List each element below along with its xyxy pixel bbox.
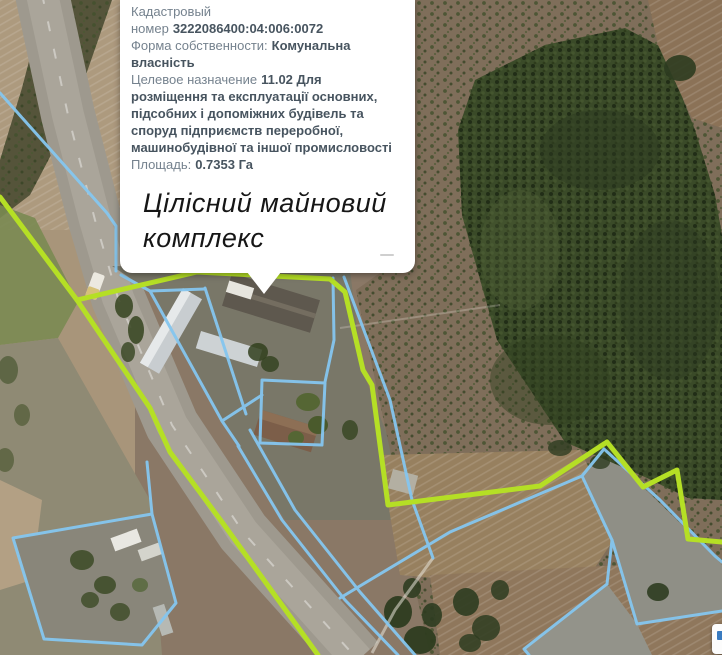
cadastral-info-popup: Кадастровый номер3222086400:04:006:0072 … bbox=[120, 0, 415, 273]
map-control-icon bbox=[717, 631, 722, 640]
purpose-field: Целевое назначение11.02 Для розміщення т… bbox=[131, 71, 399, 156]
annotation-text: Цілісний майновий комплекс bbox=[143, 186, 393, 256]
purpose-label: Целевое назначение bbox=[131, 72, 257, 87]
ownership-field: Форма собственности:Комунальна власність bbox=[131, 37, 399, 71]
area-field: Площадь:0.7353 Га bbox=[131, 156, 399, 173]
area-value: 0.7353 Га bbox=[195, 157, 253, 172]
map-control-partial[interactable] bbox=[712, 624, 722, 654]
popup-drag-dash bbox=[380, 254, 394, 256]
cadastral-number-value: 3222086400:04:006:0072 bbox=[173, 21, 323, 36]
popup-pointer bbox=[247, 272, 281, 294]
cadastral-number-field: Кадастровый номер3222086400:04:006:0072 bbox=[131, 3, 399, 37]
ownership-label: Форма собственности: bbox=[131, 38, 268, 53]
area-label: Площадь: bbox=[131, 157, 191, 172]
